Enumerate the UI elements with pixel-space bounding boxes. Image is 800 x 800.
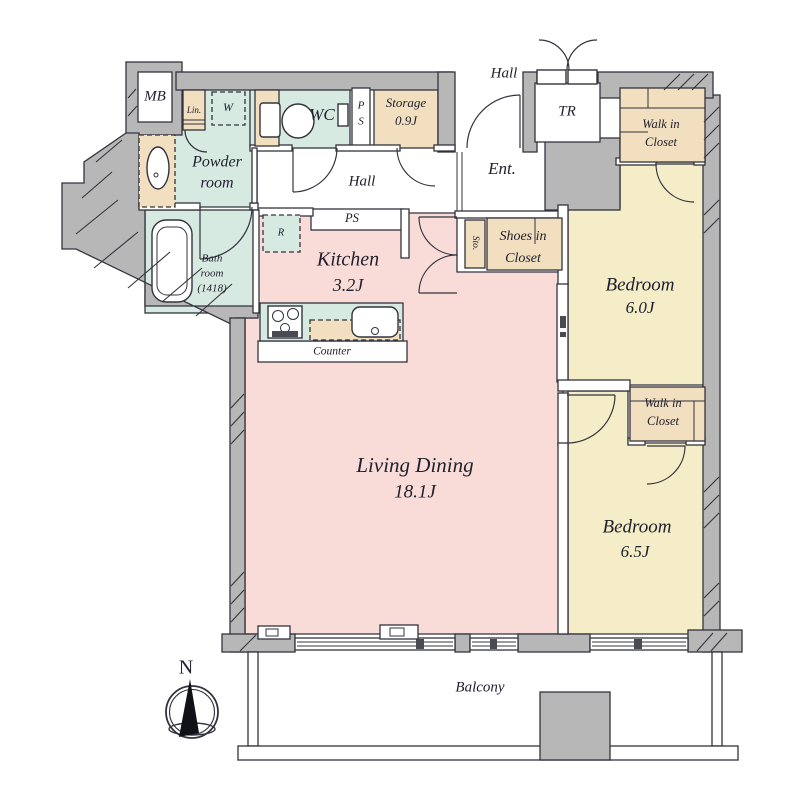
vanity-sink-icon bbox=[147, 147, 169, 189]
label-washer: W bbox=[223, 100, 234, 114]
window-living bbox=[295, 638, 455, 650]
label-kitchen-size: 3.2J bbox=[332, 275, 365, 295]
label-entrance: Ent. bbox=[487, 159, 516, 178]
label-pipe-space: PS bbox=[344, 211, 360, 225]
floor-vent-1 bbox=[258, 626, 290, 639]
label-trunk-room: TR bbox=[558, 103, 576, 119]
label-hall-outside: Hall bbox=[490, 65, 518, 81]
label-storage: Storage bbox=[386, 95, 427, 110]
floor-vent-2 bbox=[380, 625, 418, 639]
label-bedroom2-size: 6.5J bbox=[621, 542, 651, 561]
label-hall: Hall bbox=[348, 173, 376, 189]
label-balcony: Balcony bbox=[455, 679, 504, 695]
label-refrigerator: R bbox=[277, 227, 285, 238]
entry-door-arc bbox=[467, 95, 520, 148]
label-shoes-line2: Closet bbox=[505, 251, 542, 266]
label-wic1-line2: Closet bbox=[645, 135, 677, 149]
label-bath-line3: (1418) bbox=[197, 283, 227, 295]
label-bath-line1: Bath bbox=[202, 253, 223, 265]
label-kitchen: Kitchen bbox=[316, 249, 379, 271]
label-bedroom1: Bedroom bbox=[606, 274, 675, 295]
label-ps-p: P bbox=[357, 100, 365, 112]
label-small-storage: Sto. bbox=[470, 236, 480, 251]
toilet-tank-icon bbox=[260, 103, 280, 137]
label-wic1-line1: Walk in bbox=[642, 117, 679, 131]
sink-icon bbox=[352, 307, 398, 337]
label-wic2-line1: Walk in bbox=[644, 396, 681, 410]
balcony-ac-pad bbox=[540, 692, 610, 760]
compass: N bbox=[166, 657, 218, 738]
label-meter-box: MB bbox=[143, 88, 166, 104]
label-powder-line2: room bbox=[200, 175, 233, 192]
label-ps-s: S bbox=[358, 116, 364, 128]
balcony-edge bbox=[238, 746, 738, 760]
balcony-wall-right bbox=[712, 652, 722, 746]
label-storage-size: 0.9J bbox=[395, 113, 418, 128]
label-wic2-line2: Closet bbox=[647, 414, 679, 428]
label-living-dining: Living Dining bbox=[355, 453, 473, 477]
floor-plan-page: N MB Lin. W WC P S Storage 0.9J Hall TR … bbox=[0, 0, 800, 800]
compass-north-label: N bbox=[179, 657, 193, 679]
label-living-dining-size: 18.1J bbox=[394, 481, 437, 502]
label-shoes-line1: Shoes in bbox=[499, 229, 546, 244]
label-powder-line1: Powder bbox=[191, 154, 243, 171]
room-living-dining-kitchen bbox=[245, 213, 563, 634]
label-counter: Counter bbox=[313, 346, 351, 358]
label-bedroom2: Bedroom bbox=[603, 516, 672, 537]
label-bedroom1-size: 6.0J bbox=[626, 298, 656, 317]
label-bath-line2: room bbox=[201, 268, 224, 280]
label-linen: Lin. bbox=[186, 105, 201, 115]
balcony-wall-left bbox=[248, 652, 258, 746]
floor-plan: N MB Lin. W WC P S Storage 0.9J Hall TR … bbox=[0, 0, 800, 800]
label-wc: WC bbox=[309, 105, 335, 124]
